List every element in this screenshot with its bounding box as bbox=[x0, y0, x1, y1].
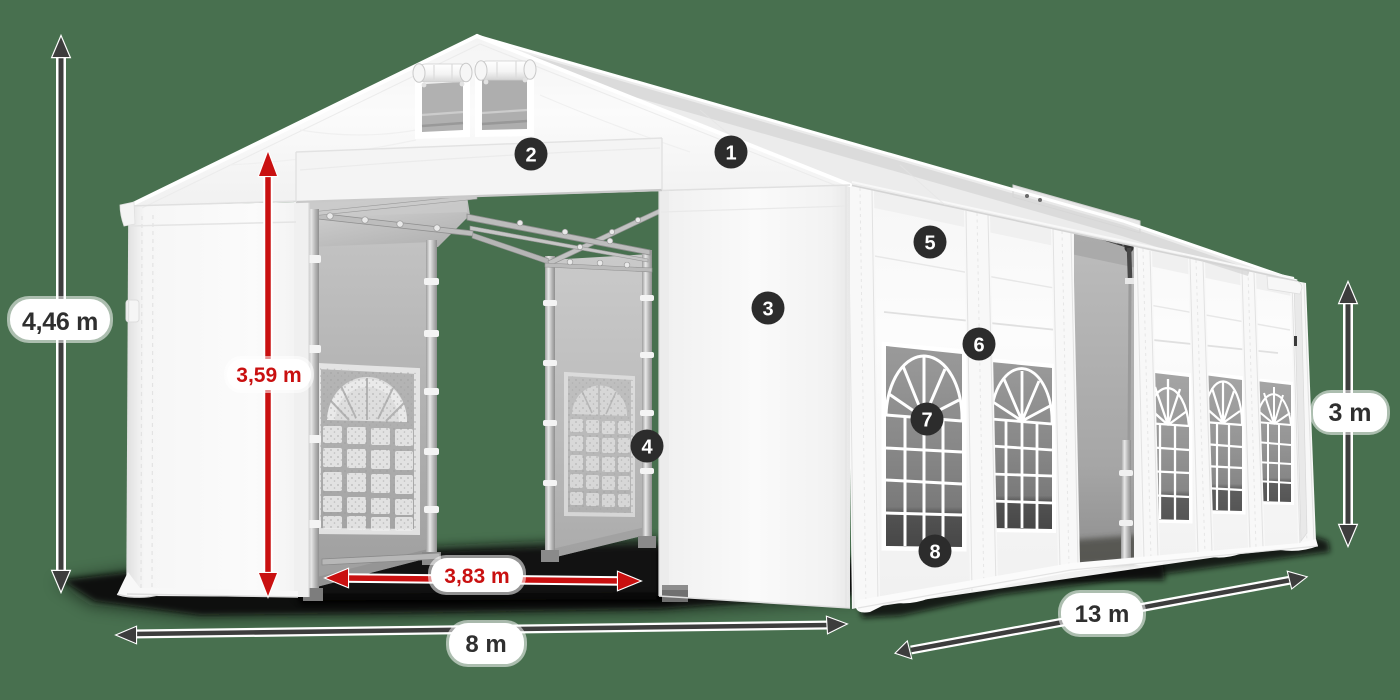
svg-text:1: 1 bbox=[725, 143, 736, 165]
svg-text:3 m: 3 m bbox=[1328, 399, 1371, 427]
svg-text:4: 4 bbox=[641, 437, 653, 459]
svg-text:13 m: 13 m bbox=[1075, 601, 1130, 628]
svg-text:8 m: 8 m bbox=[465, 631, 506, 658]
svg-text:8: 8 bbox=[929, 542, 940, 564]
svg-text:5: 5 bbox=[924, 233, 935, 255]
svg-text:3,59 m: 3,59 m bbox=[236, 364, 301, 387]
svg-text:7: 7 bbox=[921, 410, 932, 432]
svg-text:3,83 m: 3,83 m bbox=[444, 565, 509, 588]
svg-text:4,46 m: 4,46 m bbox=[22, 308, 98, 336]
svg-text:6: 6 bbox=[973, 335, 984, 357]
svg-text:2: 2 bbox=[525, 145, 536, 167]
svg-text:3: 3 bbox=[762, 299, 773, 321]
